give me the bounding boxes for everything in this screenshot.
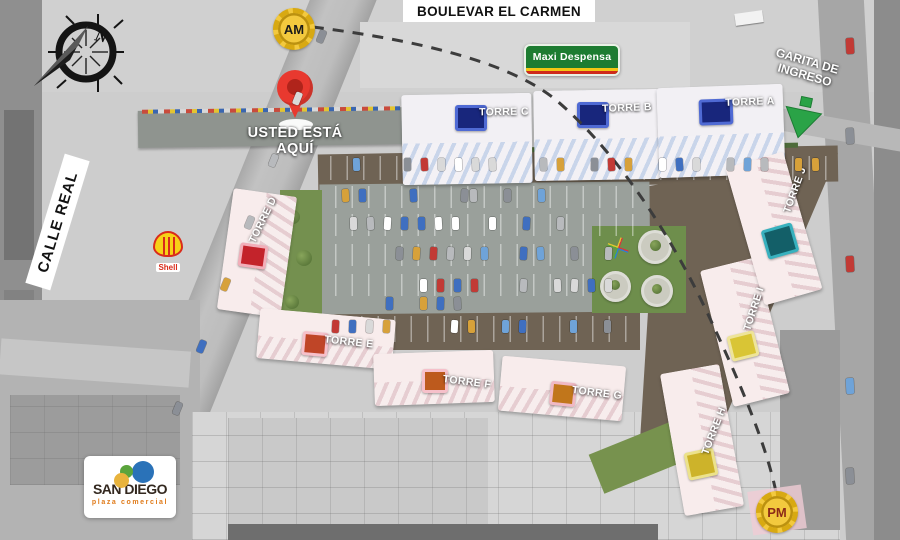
car (676, 158, 684, 171)
car (451, 320, 459, 333)
car (571, 247, 578, 260)
entrance-arrow-icon (776, 92, 829, 146)
car (420, 279, 427, 292)
car (435, 217, 443, 230)
car (520, 247, 528, 260)
maxi-stripe-red (526, 71, 618, 74)
car (461, 189, 469, 202)
parking-stalls (335, 186, 640, 208)
car (846, 128, 855, 144)
car (571, 279, 579, 292)
car (519, 320, 526, 333)
car (396, 247, 403, 260)
car (401, 217, 408, 230)
car (454, 279, 461, 292)
car (604, 320, 611, 333)
car (540, 158, 547, 171)
car (605, 279, 612, 292)
car (430, 247, 438, 260)
car (846, 378, 855, 394)
tree (652, 284, 662, 294)
car (846, 256, 855, 272)
car (520, 279, 528, 292)
car (504, 189, 511, 202)
san-diego-circle-orange (114, 473, 129, 488)
boulevard-label-box: BOULEVAR EL CARMEN (403, 0, 595, 22)
you-are-here-label: USTED ESTÁ AQUÍ (230, 125, 360, 157)
maxi-despensa-sign: Maxi Despensa (524, 44, 620, 76)
sun-am-badge: AM (273, 8, 315, 50)
car (468, 320, 475, 333)
parking-stalls (335, 214, 640, 236)
san-diego-circle-blue (132, 461, 154, 483)
car (523, 217, 531, 230)
car (452, 217, 459, 230)
car (421, 158, 429, 171)
car (727, 158, 734, 171)
car (332, 320, 340, 333)
car (464, 247, 471, 260)
car (342, 189, 350, 202)
car (455, 158, 462, 171)
car (350, 217, 357, 230)
car (481, 247, 488, 260)
car (410, 189, 418, 202)
car (472, 158, 480, 171)
car (812, 158, 819, 171)
boulevard-label: BOULEVAR EL CARMEN (417, 4, 581, 19)
aerial-left-buildings (4, 110, 34, 260)
car (383, 320, 391, 333)
car (625, 158, 632, 171)
car (502, 320, 509, 333)
san-diego-logo: SAN DIEGO plaza comercial (84, 456, 176, 518)
car (605, 247, 612, 260)
sun-pm-badge: PM (756, 491, 798, 533)
car (846, 468, 855, 484)
car (744, 158, 751, 171)
shell-pecten-icon (153, 231, 183, 257)
car (437, 279, 444, 292)
car (489, 158, 497, 171)
car (588, 279, 595, 292)
car (795, 158, 802, 171)
car (353, 158, 360, 171)
tree (650, 240, 661, 251)
aerial-warehouse-dark-row (228, 524, 658, 540)
car (404, 158, 411, 171)
car (557, 217, 564, 230)
car (418, 217, 425, 230)
car (659, 158, 666, 171)
aerial-warehouse-left (228, 418, 488, 540)
car (557, 158, 564, 171)
car (454, 297, 462, 310)
car (437, 297, 444, 310)
car (367, 217, 375, 230)
car (591, 158, 598, 171)
car (447, 247, 455, 260)
tree (296, 250, 312, 266)
compass-icon: N (26, 6, 126, 102)
car (537, 247, 545, 260)
car (489, 217, 496, 230)
car (693, 158, 700, 171)
car (359, 189, 366, 202)
car (761, 158, 768, 171)
car (608, 158, 616, 171)
car (349, 320, 356, 333)
tower-label-c: TORRE C (462, 105, 546, 118)
car (386, 297, 393, 310)
tree (285, 295, 299, 309)
car (470, 189, 477, 202)
site-map: TORRE C TORRE B TORRE A TORRE D TORRE E … (0, 0, 900, 540)
car (384, 217, 392, 230)
car (438, 158, 445, 171)
car (366, 320, 374, 333)
car (846, 38, 855, 54)
car (538, 189, 545, 202)
shell-logo: Shell (149, 231, 187, 275)
car (420, 297, 427, 310)
car (413, 247, 421, 260)
car (570, 320, 577, 333)
car (471, 279, 478, 292)
car (554, 279, 561, 292)
parking-stalls (335, 244, 585, 266)
